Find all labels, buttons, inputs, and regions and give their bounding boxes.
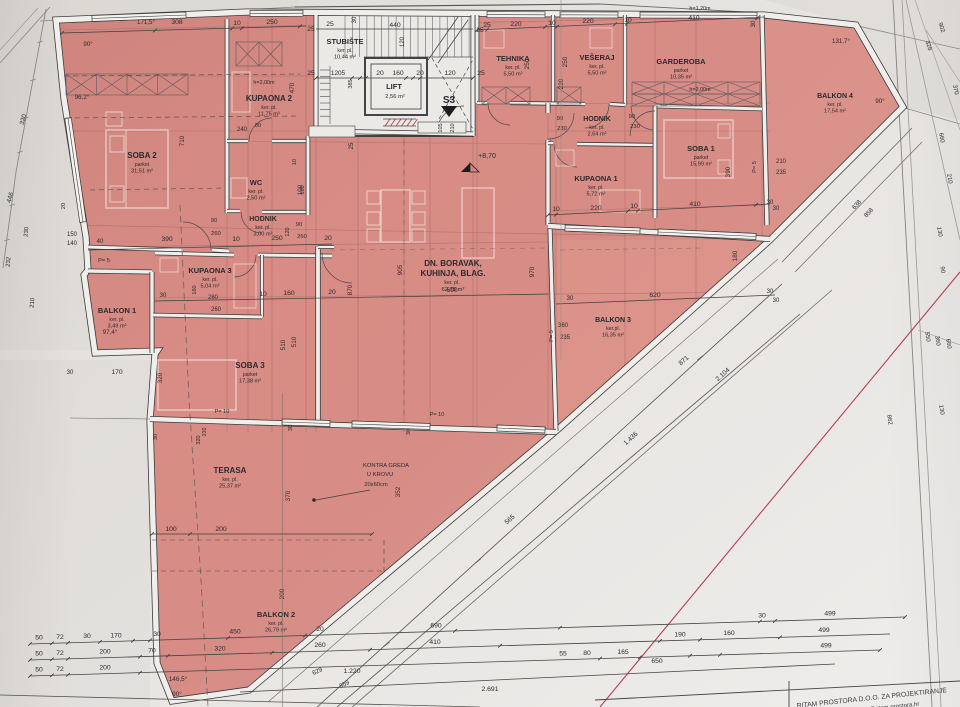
svg-text:25: 25 bbox=[326, 21, 334, 28]
svg-text:40: 40 bbox=[97, 239, 104, 245]
svg-text:150: 150 bbox=[67, 232, 78, 238]
svg-text:390: 390 bbox=[725, 166, 732, 177]
svg-text:352: 352 bbox=[395, 486, 402, 497]
svg-text:26,79 m²: 26,79 m² bbox=[265, 628, 287, 634]
svg-text:30: 30 bbox=[153, 434, 159, 440]
svg-text:ker. pl.: ker. pl. bbox=[589, 125, 604, 131]
svg-text:1205: 1205 bbox=[331, 70, 346, 77]
svg-text:70: 70 bbox=[148, 647, 156, 654]
svg-text:17,54 m²: 17,54 m² bbox=[824, 109, 846, 115]
svg-text:25: 25 bbox=[477, 70, 485, 77]
svg-text:+8,70: +8,70 bbox=[478, 153, 496, 160]
svg-text:KUPAONA 3: KUPAONA 3 bbox=[188, 266, 231, 275]
svg-text:15,99 m²: 15,99 m² bbox=[690, 162, 712, 168]
svg-text:BALKON 2: BALKON 2 bbox=[257, 610, 295, 619]
svg-text:220: 220 bbox=[590, 205, 602, 212]
svg-text:31,51 m²: 31,51 m² bbox=[131, 169, 153, 175]
svg-text:25: 25 bbox=[483, 22, 491, 29]
svg-text:KONTRA GREDA: KONTRA GREDA bbox=[363, 463, 409, 469]
svg-text:LIFT: LIFT bbox=[386, 82, 402, 91]
svg-text:20: 20 bbox=[61, 203, 67, 209]
svg-text:P= 5: P= 5 bbox=[752, 161, 758, 173]
svg-text:parket: parket bbox=[694, 155, 709, 161]
svg-text:ker. pl.: ker. pl. bbox=[202, 277, 217, 283]
svg-text:3,00 m²: 3,00 m² bbox=[254, 232, 273, 238]
svg-text:120: 120 bbox=[400, 36, 406, 47]
svg-text:390: 390 bbox=[161, 236, 173, 243]
svg-text:200: 200 bbox=[99, 665, 111, 672]
svg-text:5,50 m²: 5,50 m² bbox=[504, 72, 523, 78]
svg-text:190: 190 bbox=[674, 631, 686, 638]
svg-text:HODNIK: HODNIK bbox=[249, 216, 277, 223]
svg-text:10: 10 bbox=[259, 291, 267, 298]
svg-text:KUPAONA 1: KUPAONA 1 bbox=[574, 174, 617, 183]
svg-text:72: 72 bbox=[56, 666, 64, 673]
svg-text:30: 30 bbox=[153, 631, 161, 638]
svg-text:80: 80 bbox=[583, 650, 591, 657]
svg-text:250: 250 bbox=[562, 56, 569, 67]
svg-text:499: 499 bbox=[818, 627, 830, 634]
svg-text:105: 105 bbox=[438, 123, 444, 132]
svg-text:90°: 90° bbox=[172, 690, 182, 698]
svg-text:499: 499 bbox=[824, 610, 836, 617]
svg-text:ker. pl.: ker. pl. bbox=[261, 105, 276, 111]
svg-text:210: 210 bbox=[450, 123, 456, 132]
svg-text:250: 250 bbox=[271, 235, 283, 242]
svg-text:20: 20 bbox=[316, 626, 324, 633]
svg-text:30: 30 bbox=[751, 20, 757, 27]
svg-text:25: 25 bbox=[349, 142, 355, 149]
svg-text:25,37 m²: 25,37 m² bbox=[219, 484, 241, 490]
svg-text:P= 5: P= 5 bbox=[549, 330, 555, 342]
svg-text:510: 510 bbox=[280, 339, 287, 350]
svg-text:360: 360 bbox=[558, 323, 569, 329]
svg-text:30: 30 bbox=[160, 293, 167, 299]
svg-text:5,50 m²: 5,50 m² bbox=[588, 71, 607, 77]
svg-text:260: 260 bbox=[314, 642, 326, 649]
svg-text:GARDEROBA: GARDEROBA bbox=[656, 57, 706, 66]
svg-text:17,38 m²: 17,38 m² bbox=[239, 379, 261, 385]
svg-text:ker. pl.: ker. pl. bbox=[827, 102, 842, 108]
svg-text:870: 870 bbox=[347, 284, 354, 295]
svg-text:165: 165 bbox=[617, 649, 629, 656]
svg-text:25: 25 bbox=[476, 27, 484, 34]
svg-text:30: 30 bbox=[67, 370, 74, 376]
svg-text:5,72 m²: 5,72 m² bbox=[587, 192, 606, 198]
svg-text:BALKON 4: BALKON 4 bbox=[817, 93, 853, 100]
svg-text:ker. pl.: ker. pl. bbox=[109, 317, 124, 323]
svg-text:308: 308 bbox=[171, 19, 183, 26]
svg-text:170: 170 bbox=[111, 369, 123, 376]
svg-text:210: 210 bbox=[30, 297, 37, 308]
svg-text:TEHNIKA: TEHNIKA bbox=[496, 54, 530, 63]
svg-text:HODNIK: HODNIK bbox=[583, 116, 611, 123]
svg-text:96,2°: 96,2° bbox=[75, 94, 90, 101]
svg-text:320: 320 bbox=[214, 645, 226, 652]
svg-text:SOBA 2: SOBA 2 bbox=[127, 151, 157, 160]
svg-text:25: 25 bbox=[307, 70, 315, 77]
svg-text:90: 90 bbox=[629, 114, 635, 120]
svg-text:parket: parket bbox=[243, 372, 258, 378]
svg-text:20: 20 bbox=[416, 70, 424, 77]
svg-text:171,5°: 171,5° bbox=[137, 19, 155, 26]
svg-text:160: 160 bbox=[283, 290, 295, 297]
svg-text:10,35 m²: 10,35 m² bbox=[670, 75, 692, 81]
svg-text:parket: parket bbox=[135, 162, 150, 168]
svg-text:232: 232 bbox=[6, 256, 13, 267]
svg-text:1.220: 1.220 bbox=[343, 668, 360, 675]
svg-text:2.691: 2.691 bbox=[481, 686, 498, 693]
svg-text:20: 20 bbox=[376, 70, 384, 77]
svg-text:STUBIŠTE: STUBIŠTE bbox=[326, 37, 363, 46]
svg-text:P= 5: P= 5 bbox=[98, 258, 110, 264]
svg-text:170: 170 bbox=[110, 632, 122, 639]
svg-text:ker. pl.: ker. pl. bbox=[268, 621, 283, 627]
svg-text:50: 50 bbox=[35, 667, 43, 674]
svg-text:90°: 90° bbox=[875, 98, 885, 105]
svg-text:80: 80 bbox=[255, 123, 261, 129]
svg-text:ker. pl.: ker. pl. bbox=[337, 48, 352, 54]
svg-text:ker. pl.: ker. pl. bbox=[444, 280, 459, 286]
svg-text:20x60cm: 20x60cm bbox=[364, 482, 388, 488]
svg-text:55: 55 bbox=[559, 651, 567, 658]
svg-text:620: 620 bbox=[649, 292, 661, 299]
svg-text:SOBA 3: SOBA 3 bbox=[235, 361, 265, 370]
svg-text:parket: parket bbox=[674, 68, 689, 74]
svg-text:WC: WC bbox=[250, 178, 263, 187]
svg-text:30: 30 bbox=[773, 206, 780, 212]
svg-text:ker. pl.: ker. pl. bbox=[222, 477, 237, 483]
svg-text:905: 905 bbox=[397, 264, 404, 275]
svg-text:120: 120 bbox=[285, 227, 291, 236]
svg-text:160: 160 bbox=[723, 630, 735, 637]
svg-text:62,75 m²: 62,75 m² bbox=[442, 287, 465, 293]
svg-text:410: 410 bbox=[688, 15, 700, 22]
svg-text:16,35 m²: 16,35 m² bbox=[602, 333, 624, 339]
svg-text:146,5°: 146,5° bbox=[169, 675, 188, 683]
svg-text:10: 10 bbox=[552, 206, 560, 213]
svg-text:160: 160 bbox=[392, 70, 404, 77]
svg-text:160: 160 bbox=[192, 285, 198, 294]
svg-text:235: 235 bbox=[776, 170, 787, 176]
svg-text:90: 90 bbox=[211, 218, 217, 224]
svg-text:100: 100 bbox=[300, 185, 306, 194]
svg-text:30: 30 bbox=[352, 16, 358, 23]
svg-text:11,75 m²: 11,75 m² bbox=[258, 112, 280, 118]
svg-text:h=2,00m: h=2,00m bbox=[253, 80, 275, 86]
svg-text:90°: 90° bbox=[83, 41, 93, 48]
svg-text:470: 470 bbox=[289, 82, 296, 93]
svg-text:97,4°: 97,4° bbox=[103, 329, 118, 336]
svg-text:ker. pl.: ker. pl. bbox=[255, 225, 270, 231]
svg-text:SOBA 1: SOBA 1 bbox=[687, 144, 715, 153]
svg-text:h=2,00m: h=2,00m bbox=[689, 87, 711, 93]
svg-text:90: 90 bbox=[296, 222, 302, 228]
svg-text:10: 10 bbox=[630, 203, 638, 210]
svg-text:410: 410 bbox=[429, 639, 441, 646]
svg-text:ker. pl.: ker. pl. bbox=[248, 189, 263, 195]
svg-text:440: 440 bbox=[389, 22, 401, 29]
svg-text:200: 200 bbox=[99, 649, 111, 656]
svg-text:10: 10 bbox=[548, 20, 556, 27]
svg-text:50: 50 bbox=[35, 635, 43, 642]
svg-text:10: 10 bbox=[233, 20, 241, 27]
svg-text:370: 370 bbox=[285, 490, 292, 501]
svg-text:260: 260 bbox=[297, 234, 307, 240]
svg-text:10: 10 bbox=[624, 17, 632, 24]
svg-text:690: 690 bbox=[430, 622, 442, 629]
svg-text:90: 90 bbox=[557, 116, 563, 122]
svg-text:210: 210 bbox=[776, 159, 787, 165]
svg-text:385: 385 bbox=[348, 79, 354, 88]
svg-text:230: 230 bbox=[202, 428, 208, 437]
svg-text:100: 100 bbox=[165, 526, 177, 533]
svg-text:970: 970 bbox=[529, 266, 536, 277]
svg-text:30: 30 bbox=[773, 298, 780, 304]
svg-text:2,50 m²: 2,50 m² bbox=[247, 196, 266, 202]
svg-text:BALKON 3: BALKON 3 bbox=[595, 317, 631, 324]
svg-text:120: 120 bbox=[444, 70, 456, 77]
svg-text:240: 240 bbox=[237, 127, 248, 133]
svg-text:72: 72 bbox=[56, 650, 64, 657]
svg-text:20: 20 bbox=[328, 289, 336, 296]
svg-text:S3: S3 bbox=[443, 95, 456, 106]
svg-text:710: 710 bbox=[179, 135, 186, 146]
svg-text:VEŠERAJ: VEŠERAJ bbox=[579, 53, 614, 62]
svg-text:250: 250 bbox=[266, 19, 278, 26]
svg-text:220: 220 bbox=[582, 18, 594, 25]
svg-text:30: 30 bbox=[758, 612, 766, 619]
svg-text:25: 25 bbox=[307, 26, 315, 33]
svg-text:2,56 m²: 2,56 m² bbox=[385, 94, 405, 100]
svg-text:U KROVU: U KROVU bbox=[367, 472, 393, 478]
svg-text:30: 30 bbox=[406, 429, 412, 435]
svg-text:320: 320 bbox=[157, 372, 164, 383]
svg-text:10: 10 bbox=[232, 236, 240, 243]
svg-text:180: 180 bbox=[732, 250, 739, 261]
svg-text:72: 72 bbox=[56, 634, 64, 641]
svg-text:h=1,20m: h=1,20m bbox=[689, 6, 711, 12]
svg-text:499: 499 bbox=[820, 643, 832, 650]
svg-text:260: 260 bbox=[211, 307, 222, 313]
svg-text:260: 260 bbox=[211, 231, 221, 237]
svg-text:DN. BORAVAK,: DN. BORAVAK, bbox=[424, 259, 481, 268]
svg-text:230: 230 bbox=[630, 124, 640, 130]
svg-text:ker.pl.: ker.pl. bbox=[606, 326, 620, 332]
svg-text:230: 230 bbox=[557, 126, 567, 132]
svg-text:KUPAONA 2: KUPAONA 2 bbox=[246, 94, 293, 103]
svg-text:220: 220 bbox=[510, 21, 522, 28]
svg-text:650: 650 bbox=[651, 658, 663, 665]
svg-text:280: 280 bbox=[208, 295, 219, 301]
svg-text:BALKON 1: BALKON 1 bbox=[98, 306, 136, 315]
svg-text:P= 10: P= 10 bbox=[215, 409, 230, 415]
svg-text:140: 140 bbox=[67, 241, 78, 247]
svg-text:30: 30 bbox=[83, 633, 91, 640]
svg-text:230: 230 bbox=[24, 226, 31, 237]
svg-text:ker. pl.: ker. pl. bbox=[588, 185, 603, 191]
svg-text:TERASA: TERASA bbox=[214, 466, 247, 475]
svg-text:ker. pl.: ker. pl. bbox=[505, 65, 520, 71]
svg-text:131,7°: 131,7° bbox=[832, 38, 850, 45]
svg-text:30: 30 bbox=[288, 425, 294, 431]
svg-text:450: 450 bbox=[229, 629, 241, 636]
svg-text:50: 50 bbox=[35, 651, 43, 658]
svg-text:5,04 m²: 5,04 m² bbox=[201, 284, 220, 290]
svg-text:10,44 m²: 10,44 m² bbox=[334, 55, 356, 61]
svg-text:10: 10 bbox=[292, 159, 298, 165]
svg-text:ker. pl.: ker. pl. bbox=[589, 64, 604, 70]
svg-text:30: 30 bbox=[567, 296, 574, 302]
svg-text:2,64 m²: 2,64 m² bbox=[588, 132, 607, 138]
svg-text:410: 410 bbox=[689, 201, 701, 208]
svg-text:510: 510 bbox=[291, 336, 298, 347]
svg-text:P= 10: P= 10 bbox=[430, 412, 445, 418]
svg-text:20: 20 bbox=[324, 235, 332, 242]
svg-text:KUHINJA, BLAG.: KUHINJA, BLAG. bbox=[421, 269, 486, 278]
svg-text:200: 200 bbox=[215, 526, 227, 533]
